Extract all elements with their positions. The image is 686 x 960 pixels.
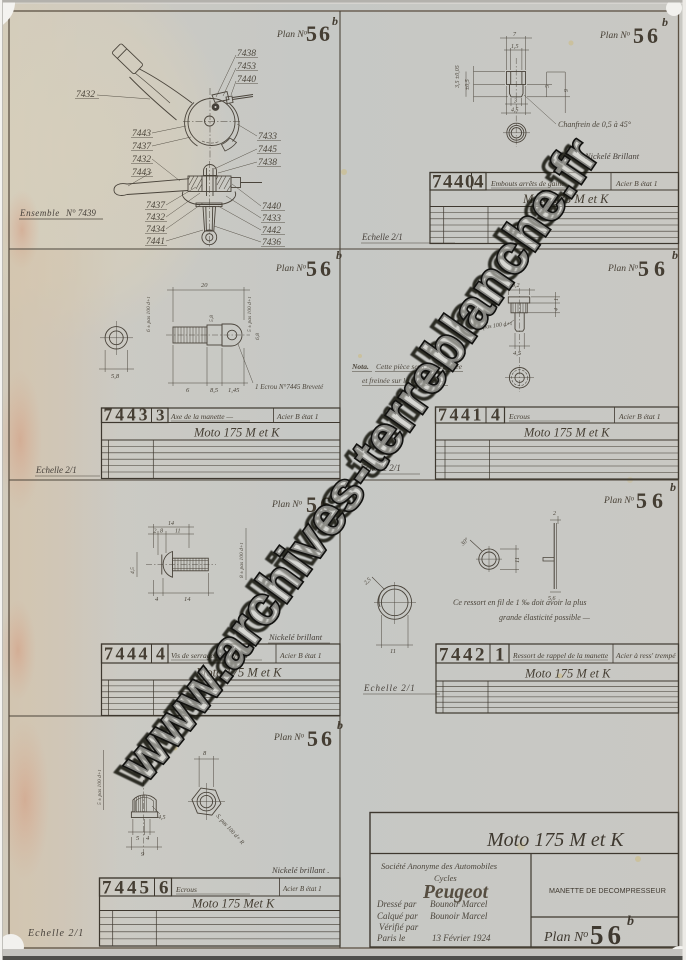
svg-text:N° 7439: N° 7439 xyxy=(65,208,96,218)
svg-text:Moto 175 M et K: Moto 175 M et K xyxy=(523,426,610,440)
svg-text:56: 56 xyxy=(306,256,334,281)
svg-text:Dressé par: Dressé par xyxy=(376,899,417,909)
svg-text:7442: 7442 xyxy=(439,645,487,666)
svg-text:2: 2 xyxy=(553,511,556,517)
svg-text:Echelle 2/1: Echelle 2/1 xyxy=(35,465,77,475)
svg-text:56: 56 xyxy=(636,488,668,513)
svg-text:20: 20 xyxy=(201,282,208,289)
svg-text:56: 56 xyxy=(633,23,661,48)
svg-text:Moto 175 M et K: Moto 175 M et K xyxy=(486,829,625,851)
svg-text:±0,5: ±0,5 xyxy=(465,79,471,90)
svg-text:6 ± pas 100 d+t: 6 ± pas 100 d+t xyxy=(146,296,152,332)
svg-text:11: 11 xyxy=(390,648,396,655)
svg-text:Moto 175 Met K: Moto 175 Met K xyxy=(191,897,275,911)
svg-text:Axe de la manette —: Axe de la manette — xyxy=(170,412,233,421)
svg-text:1 Ecrou N°7445 Breveté: 1 Ecrou N°7445 Breveté xyxy=(255,383,324,391)
svg-text:1: 1 xyxy=(554,298,560,301)
svg-text:Ce ressort en fil de 1 ‰: Ce ressort en fil de 1 ‰ doit avoir la p… xyxy=(453,598,586,607)
svg-text:Moto 175 M et K: Moto 175 M et K xyxy=(193,426,280,440)
svg-text:Chanfrein de 0,5 à 45°: Chanfrein de 0,5 à 45° xyxy=(558,120,632,129)
svg-text:56: 56 xyxy=(306,21,332,46)
svg-text:Nota.: Nota. xyxy=(351,362,369,371)
svg-text:Nickelé brillant .: Nickelé brillant . xyxy=(271,865,329,875)
svg-text:Echelle 2/1: Echelle 2/1 xyxy=(361,232,403,242)
svg-text:5,8: 5,8 xyxy=(209,315,215,322)
svg-text:Plan No: Plan No xyxy=(603,495,635,507)
svg-text:Ressort de rappel de la manet: Ressort de rappel de la manette xyxy=(512,651,609,660)
svg-text:Acier à ress' trempé: Acier à ress' trempé xyxy=(615,651,676,660)
svg-text:Société Anonyme des Automobile: Société Anonyme des Automobiles xyxy=(381,861,498,871)
svg-text:8 ± pas 100 d+t: 8 ± pas 100 d+t xyxy=(239,542,245,578)
svg-text:7441: 7441 xyxy=(438,405,484,425)
svg-text:5: 5 xyxy=(545,85,551,88)
svg-text:b: b xyxy=(332,14,338,28)
svg-text:Ensemble: Ensemble xyxy=(19,208,60,218)
svg-text:6,8: 6,8 xyxy=(255,333,261,340)
svg-text:4: 4 xyxy=(553,308,560,311)
svg-text:7443: 7443 xyxy=(104,405,151,425)
svg-text:4,5: 4,5 xyxy=(513,350,522,357)
svg-text:Plan No: Plan No xyxy=(273,732,305,744)
svg-text:7445: 7445 xyxy=(102,878,152,899)
svg-text:7440: 7440 xyxy=(432,172,476,193)
svg-text:14: 14 xyxy=(168,520,174,527)
svg-text:Plan No: Plan No xyxy=(607,263,639,275)
svg-text:6: 6 xyxy=(159,878,169,899)
svg-text:b: b xyxy=(662,15,668,29)
svg-text:Ecrous: Ecrous xyxy=(175,885,197,894)
svg-text:7444: 7444 xyxy=(104,644,150,664)
svg-text:11: 11 xyxy=(514,557,521,563)
svg-text:Plan No: Plan No xyxy=(276,29,308,41)
svg-text:Acier B état 1: Acier B état 1 xyxy=(615,179,657,188)
svg-text:8: 8 xyxy=(160,529,163,535)
svg-text:2: 2 xyxy=(154,529,157,535)
svg-text:5,8: 5,8 xyxy=(111,373,120,380)
svg-text:Plan No: Plan No xyxy=(543,929,588,945)
svg-text:9: 9 xyxy=(564,89,570,92)
svg-text:3: 3 xyxy=(513,99,517,105)
svg-text:b: b xyxy=(337,718,343,732)
svg-text:56: 56 xyxy=(638,256,670,281)
svg-text:14: 14 xyxy=(184,596,191,603)
svg-text:Echelle 2/1: Echelle 2/1 xyxy=(27,928,84,939)
svg-text:b: b xyxy=(670,480,676,494)
svg-text:Moto 175 M et K: Moto 175 M et K xyxy=(524,667,611,681)
svg-text:b: b xyxy=(336,248,342,262)
svg-text:Acier B état 1: Acier B état 1 xyxy=(618,412,660,421)
svg-text:b: b xyxy=(672,248,678,262)
svg-text:3,5 ±0,05: 3,5 ±0,05 xyxy=(455,65,461,89)
svg-text:Acier B état 1: Acier B état 1 xyxy=(282,885,322,893)
svg-text:4: 4 xyxy=(474,172,484,193)
svg-text:Paris le: Paris le xyxy=(376,933,405,943)
svg-text:Bounoir Marcel: Bounoir Marcel xyxy=(430,899,488,909)
svg-text:4: 4 xyxy=(156,644,165,664)
svg-text:3: 3 xyxy=(156,406,165,425)
svg-text:Plan No: Plan No xyxy=(599,30,631,42)
svg-text:56: 56 xyxy=(590,920,625,950)
svg-text:1,5: 1,5 xyxy=(511,44,519,50)
svg-text:4,5: 4,5 xyxy=(129,567,136,574)
svg-text:1,45: 1,45 xyxy=(228,387,240,394)
svg-text:8,5: 8,5 xyxy=(210,387,219,394)
svg-text:Bounoir Marcel: Bounoir Marcel xyxy=(430,911,488,921)
svg-text:Acier B état 1: Acier B état 1 xyxy=(279,651,321,660)
svg-text:4,5: 4,5 xyxy=(158,814,166,821)
svg-text:13 Février 1924: 13 Février 1924 xyxy=(432,933,491,943)
svg-text:1: 1 xyxy=(495,645,505,666)
svg-text:56: 56 xyxy=(307,726,335,751)
svg-text:4,5: 4,5 xyxy=(511,107,519,114)
svg-text:5 ± pas 100 d+t: 5 ± pas 100 d+t xyxy=(247,296,253,332)
svg-text:4: 4 xyxy=(491,405,500,425)
svg-text:Echelle 2/1: Echelle 2/1 xyxy=(363,683,416,693)
svg-text:grande élasticité possible: grande élasticité possible — xyxy=(499,613,591,622)
svg-text:Vérifié par: Vérifié par xyxy=(379,922,419,932)
svg-text:MANETTE DE DECOMPRESSEUR: MANETTE DE DECOMPRESSEUR xyxy=(549,886,666,895)
svg-text:Ecrous: Ecrous xyxy=(508,412,530,421)
svg-text:Acier B état 1: Acier B état 1 xyxy=(276,412,318,421)
svg-text:11: 11 xyxy=(175,529,181,535)
svg-text:b: b xyxy=(627,914,634,929)
svg-text:Plan No: Plan No xyxy=(275,263,307,275)
svg-text:5 ± pas 100 d+t: 5 ± pas 100 d+t xyxy=(97,769,103,805)
svg-text:Calqué par: Calqué par xyxy=(377,911,418,921)
